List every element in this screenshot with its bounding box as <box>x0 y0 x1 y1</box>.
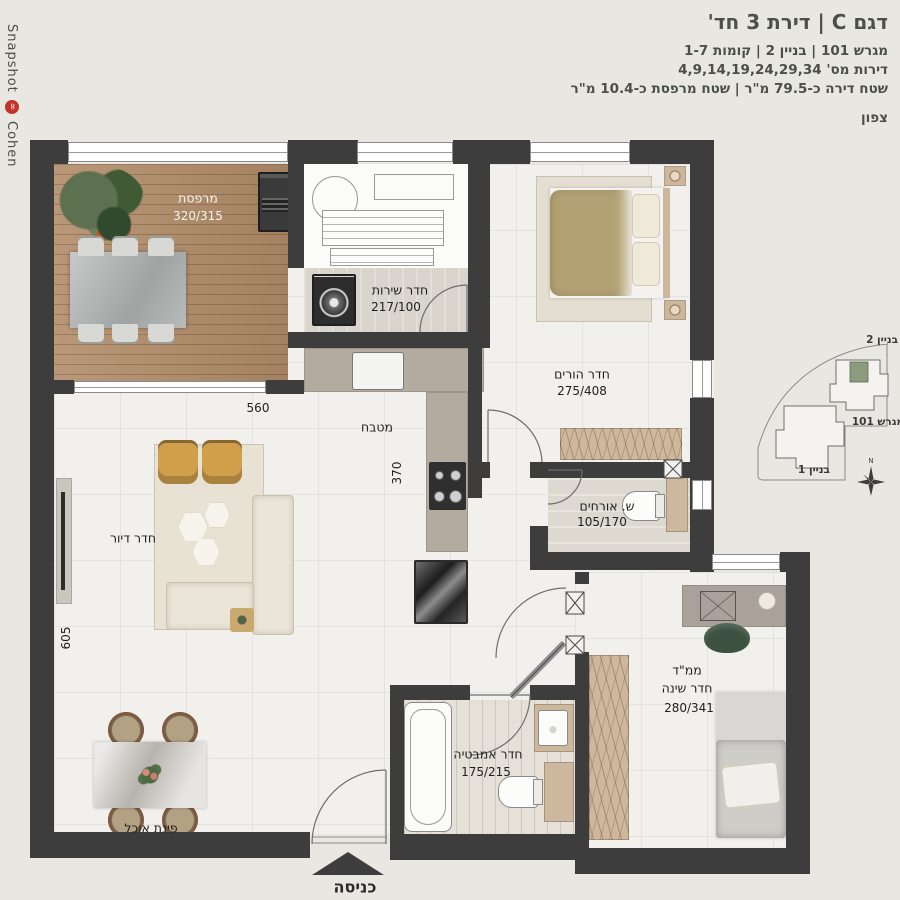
studio-name-top: Snapshot <box>4 24 19 93</box>
room-label-wc: ש. אורחים <box>580 499 635 514</box>
wall <box>530 526 548 552</box>
desk-detail <box>700 591 736 621</box>
wall <box>266 380 304 394</box>
nightstand <box>664 300 686 320</box>
utility-shelf-outline <box>374 174 454 200</box>
balcony-table <box>70 252 186 328</box>
refrigerator <box>414 560 468 624</box>
entrance-arrow-icon <box>312 852 384 875</box>
dim-605: 605 <box>59 627 73 650</box>
floorplan-page: { "branding": { "studio_top": "Snapshot"… <box>0 0 900 900</box>
bathtub <box>404 702 452 832</box>
balcony-chair <box>148 236 174 256</box>
plan-title: דגם C | דירת 3 חד' <box>571 10 888 34</box>
studio-logo-icon: ∞ <box>5 100 19 114</box>
apartment-numbers: דירות מס' 4,9,14,19,24,29,34 <box>571 61 888 80</box>
mamad-closet <box>589 655 629 840</box>
armchair <box>158 440 198 484</box>
wall <box>575 572 589 584</box>
entrance-threshold <box>312 837 386 843</box>
headboard <box>663 188 670 298</box>
bbq-grill <box>258 172 292 232</box>
mamad-window <box>712 554 780 570</box>
desk-lamp <box>758 592 776 610</box>
dim-560: 560 <box>247 401 270 415</box>
bath-sink <box>538 710 568 746</box>
room-dims-balcony: 320/315 <box>173 209 223 223</box>
wall <box>786 552 810 874</box>
room-dims-bathroom: 175/215 <box>461 765 511 779</box>
bed-pillow <box>632 242 660 286</box>
wall <box>468 164 490 348</box>
wall <box>288 140 358 164</box>
washing-machine <box>312 274 356 326</box>
room-dims-service: 217/100 <box>371 300 421 314</box>
side-table <box>230 608 254 632</box>
drying-rack-2 <box>330 248 434 266</box>
balcony-chair <box>148 324 174 344</box>
wall <box>575 848 810 874</box>
kitchen-sink <box>352 352 404 390</box>
wc-window <box>692 480 712 510</box>
bedroom-side-window <box>692 360 712 398</box>
room-dims-master: 275/408 <box>557 384 607 398</box>
wall <box>690 140 714 360</box>
wall <box>542 462 692 478</box>
balcony-window <box>68 142 288 162</box>
sofa-chaise <box>252 495 294 635</box>
drying-rack <box>322 210 444 246</box>
room-label-dining: פינת אוכל <box>124 821 177 836</box>
stove-cooktop <box>429 462 466 510</box>
compass-north-letter: N <box>868 457 873 465</box>
room-label-mamad-2: חדר שינה <box>662 681 713 696</box>
site-building1-label: בניין 1 <box>798 464 830 476</box>
wall <box>468 348 482 498</box>
studio-name-bottom: Cohen <box>4 121 19 168</box>
site-lot-label: מגרש 101 <box>852 416 900 428</box>
dim-370: 370 <box>390 462 404 485</box>
room-label-bathroom: חדר אמבטיה <box>453 747 522 762</box>
balcony-chair <box>112 236 138 256</box>
room-label-living: חדר דיור <box>110 531 156 546</box>
balcony-sliding-door <box>74 381 266 393</box>
wall <box>530 462 548 478</box>
plan-header: דגם C | דירת 3 חד' מגרש 101 | בניין 2 | … <box>571 10 888 126</box>
wall <box>288 332 468 348</box>
lot-building-floors: מגרש 101 | בניין 2 | קומות 1-7 <box>571 42 888 61</box>
tv-screen <box>61 492 65 590</box>
utility-window <box>357 142 453 162</box>
bed-pillow <box>632 194 660 238</box>
balcony-chair <box>112 324 138 344</box>
areas-line: שטח דירה כ-79.5 מ"ר | שטח מרפסת כ-10.4 מ… <box>571 80 888 99</box>
wall <box>530 685 575 700</box>
bed-duvet <box>550 190 632 296</box>
balcony-chair <box>78 324 104 344</box>
site-map: N בניין 2 מגרש 101 בניין 1 <box>740 330 900 510</box>
room-dims-wc: 105/170 <box>577 515 627 529</box>
master-closet <box>560 428 682 460</box>
wall <box>530 552 714 570</box>
desk-chair <box>704 623 750 653</box>
room-label-mamad: ממ"ד <box>672 663 702 678</box>
wall <box>575 652 589 848</box>
entrance-label: כניסה <box>334 878 377 897</box>
wall <box>54 380 74 394</box>
wall <box>42 832 310 858</box>
building-1-footprint <box>776 406 844 468</box>
room-dims-mamad: 280/341 <box>664 701 714 715</box>
armchair <box>202 440 242 484</box>
room-label-balcony: מרפסת <box>178 191 218 206</box>
wall <box>453 140 530 164</box>
room-label-master: חדר הורים <box>554 367 610 382</box>
room-label-service: חדר שירות <box>372 283 428 298</box>
single-bed-pillow <box>721 761 781 809</box>
highlighted-unit <box>850 362 868 382</box>
balcony-chair <box>78 236 104 256</box>
bedroom-window <box>530 142 630 162</box>
bath-cabinet <box>544 762 574 822</box>
north-label: צפון <box>571 110 888 126</box>
table-flowers <box>137 762 163 788</box>
compass-icon: N <box>857 457 885 496</box>
wall <box>288 164 304 268</box>
floor-plan: מרפסת 320/315 חדר שירות 217/100 חדר הורי… <box>30 140 810 900</box>
wall <box>390 834 575 860</box>
wall <box>30 140 54 858</box>
nightstand <box>664 166 686 186</box>
room-label-kitchen: מטבח <box>361 420 393 435</box>
studio-logo: Snapshot ∞ Cohen <box>4 24 19 194</box>
bath-toilet <box>498 776 538 808</box>
wall <box>690 552 712 572</box>
site-building2-label: בניין 2 <box>866 334 898 346</box>
